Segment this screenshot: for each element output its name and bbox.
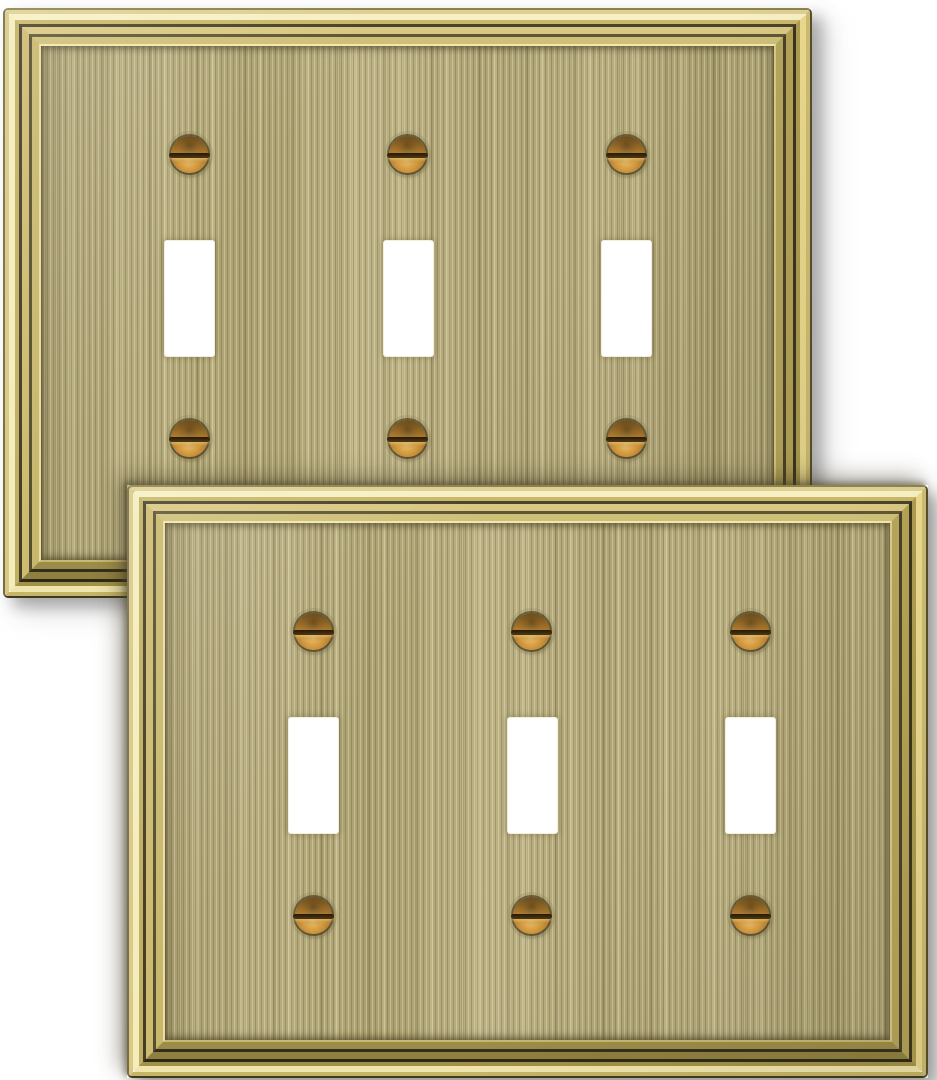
toggle-cutout-right	[602, 241, 651, 356]
screw-slot	[730, 914, 771, 919]
screw-bottom-left	[171, 420, 208, 457]
screw-top-middle	[513, 613, 550, 650]
screw-top-left	[171, 136, 208, 173]
screw-slot	[606, 153, 647, 158]
screw-bottom-left	[295, 897, 332, 934]
toggle-cutout-middle	[508, 718, 557, 833]
screw-bottom-middle	[513, 897, 550, 934]
screw-bottom-right	[732, 897, 769, 934]
product-photo-stage: Product photo: two identical antique bra…	[0, 0, 937, 1080]
screw-slot	[169, 153, 210, 158]
screw-top-left	[295, 613, 332, 650]
wall-plate-bottom	[127, 485, 928, 1078]
screw-slot	[387, 437, 428, 442]
screw-top-right	[732, 613, 769, 650]
screw-top-middle	[389, 136, 426, 173]
screw-slot	[606, 437, 647, 442]
toggle-cutout-middle	[384, 241, 433, 356]
toggle-cutout-right	[726, 718, 775, 833]
screw-slot	[169, 437, 210, 442]
screw-bottom-right	[608, 420, 645, 457]
screw-slot	[293, 630, 334, 635]
screw-top-right	[608, 136, 645, 173]
toggle-cutout-left	[289, 718, 338, 833]
screw-slot	[387, 153, 428, 158]
screw-bottom-middle	[389, 420, 426, 457]
screw-slot	[730, 630, 771, 635]
screw-slot	[511, 914, 552, 919]
screw-slot	[293, 914, 334, 919]
toggle-cutout-left	[165, 241, 214, 356]
screw-slot	[511, 630, 552, 635]
